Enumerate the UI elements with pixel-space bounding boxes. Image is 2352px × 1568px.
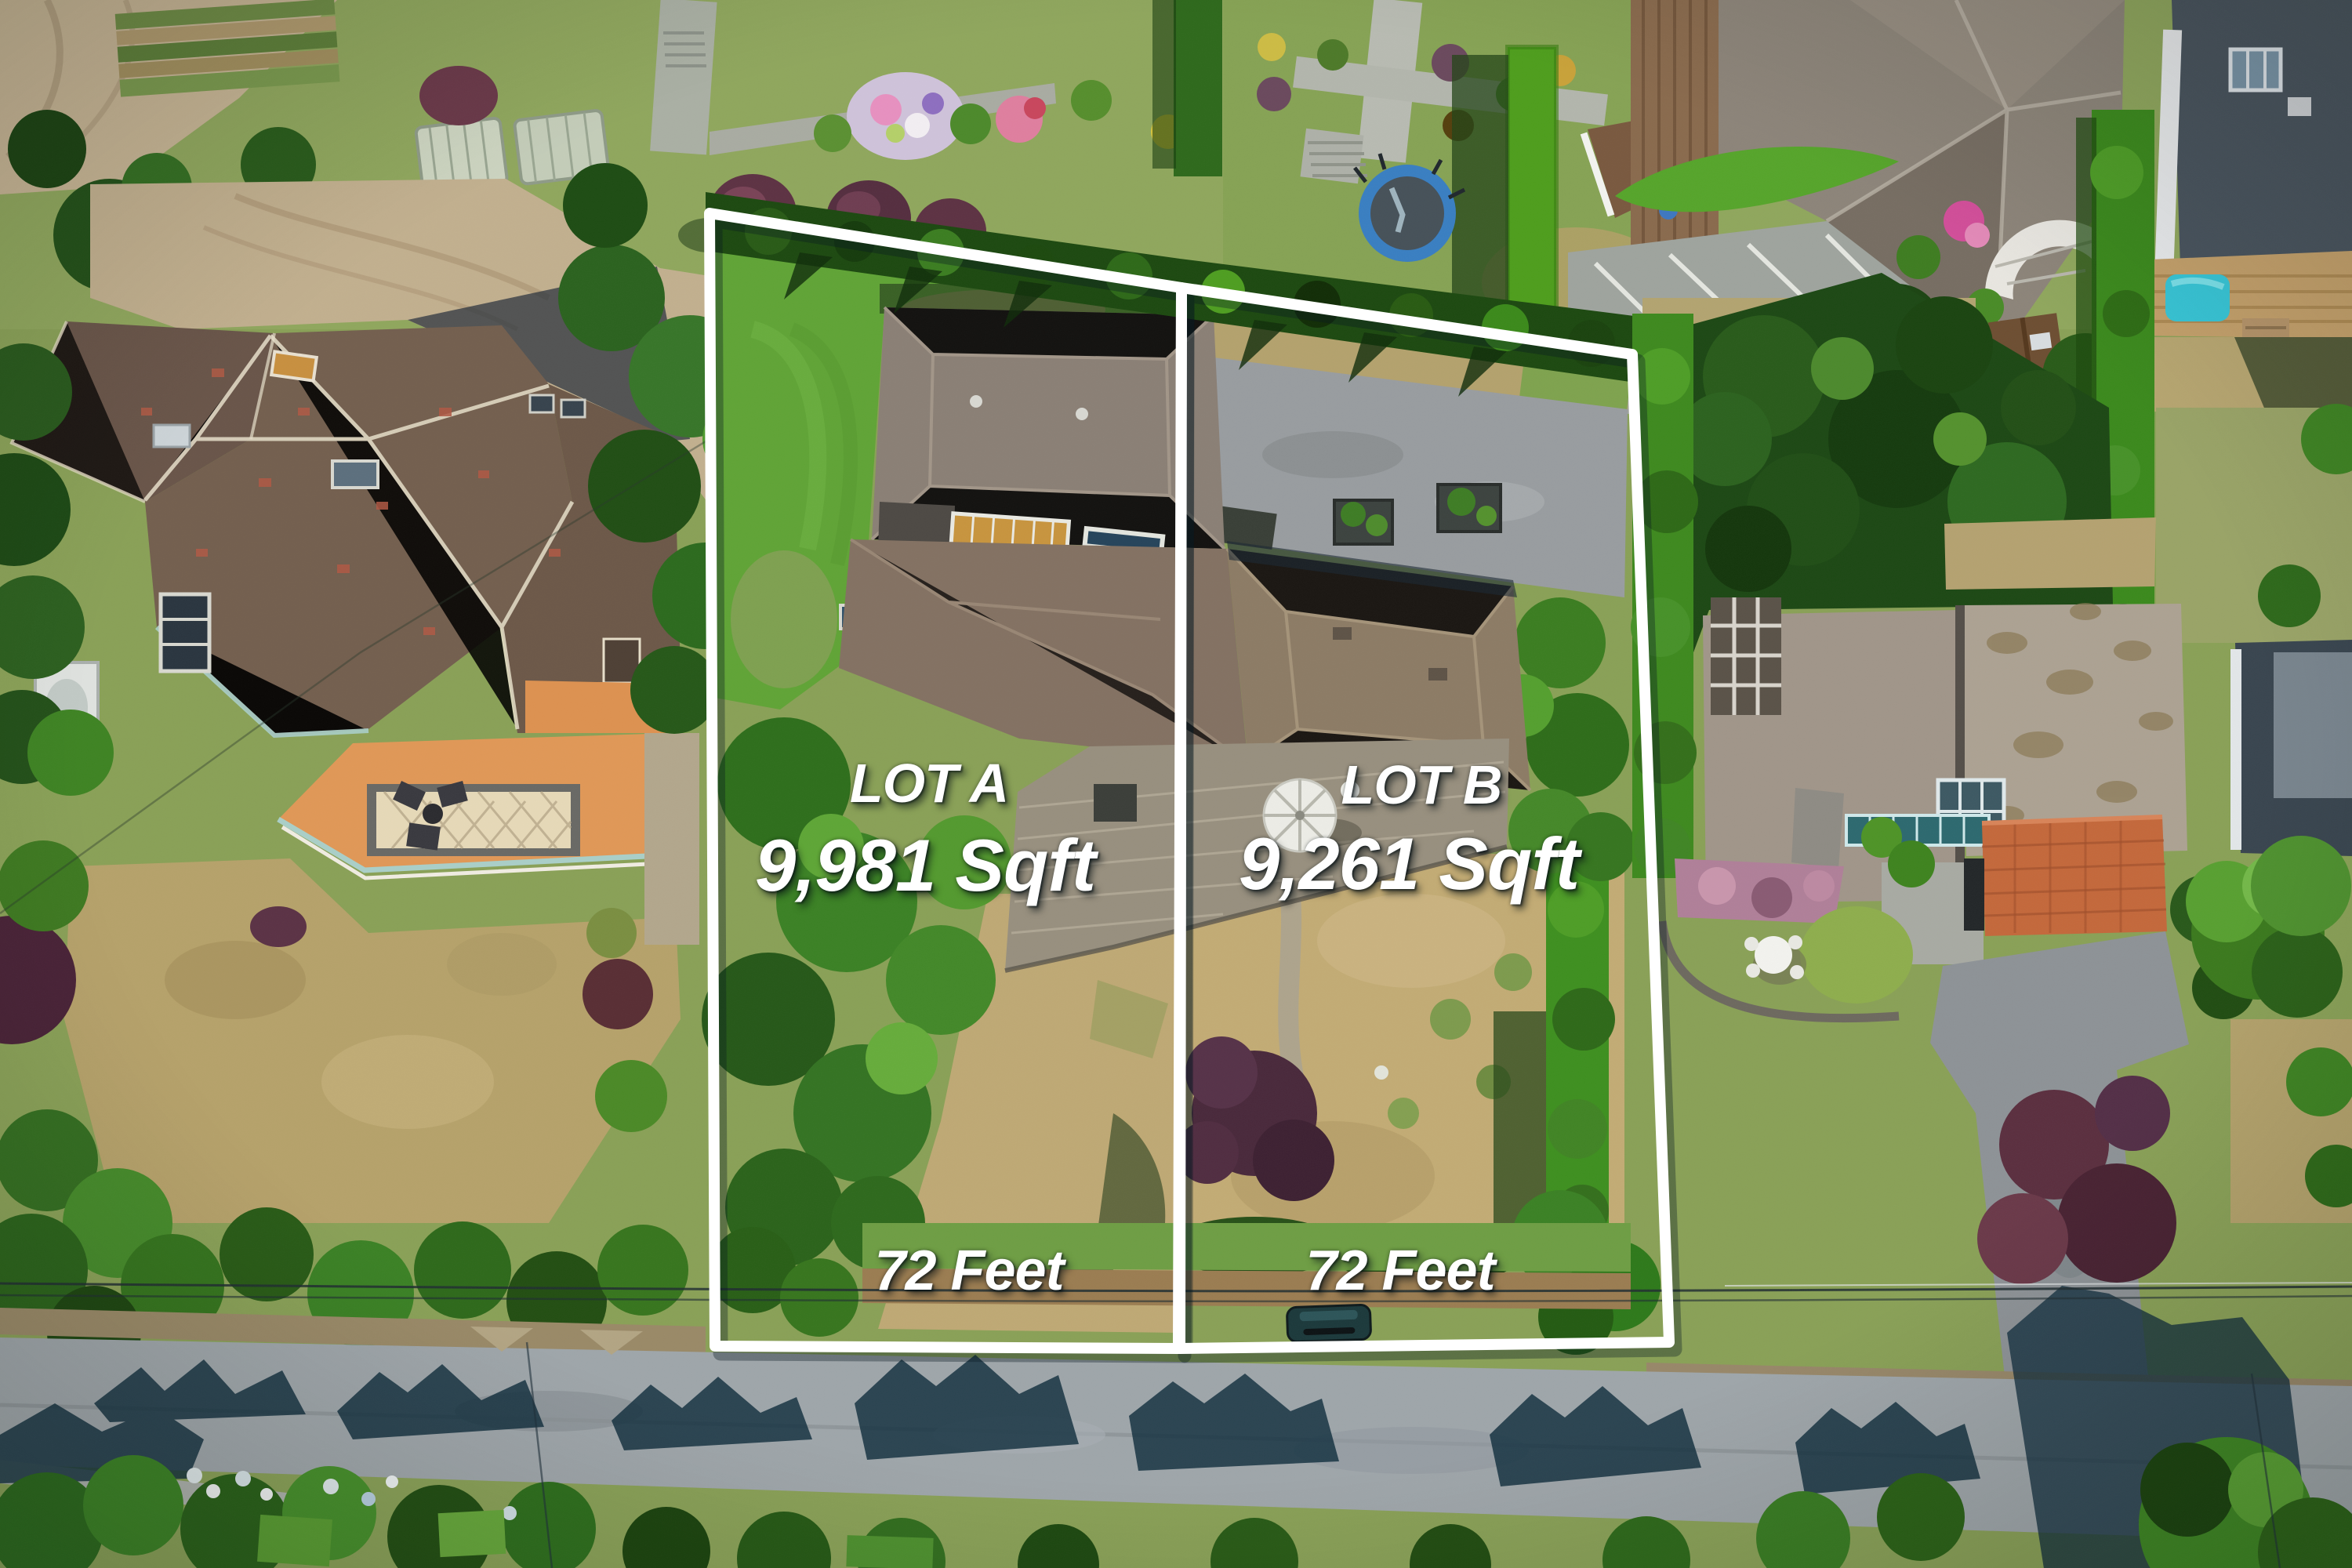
lot-a-area: 9,981 Sqft	[755, 829, 1095, 902]
lot-b-area: 9,261 Sqft	[1239, 827, 1579, 901]
lot-b-frontage: 72 Feet	[1305, 1243, 1494, 1299]
lot-a-frontage: 72 Feet	[874, 1243, 1063, 1299]
lot-b-label: LOT B	[1341, 757, 1502, 812]
aerial-photo-scene	[0, 0, 2352, 1568]
aerial-lot-photo: LOT A 9,981 Sqft LOT B 9,261 Sqft 72 Fee…	[0, 0, 2352, 1568]
lot-a-label: LOT A	[850, 756, 1008, 811]
